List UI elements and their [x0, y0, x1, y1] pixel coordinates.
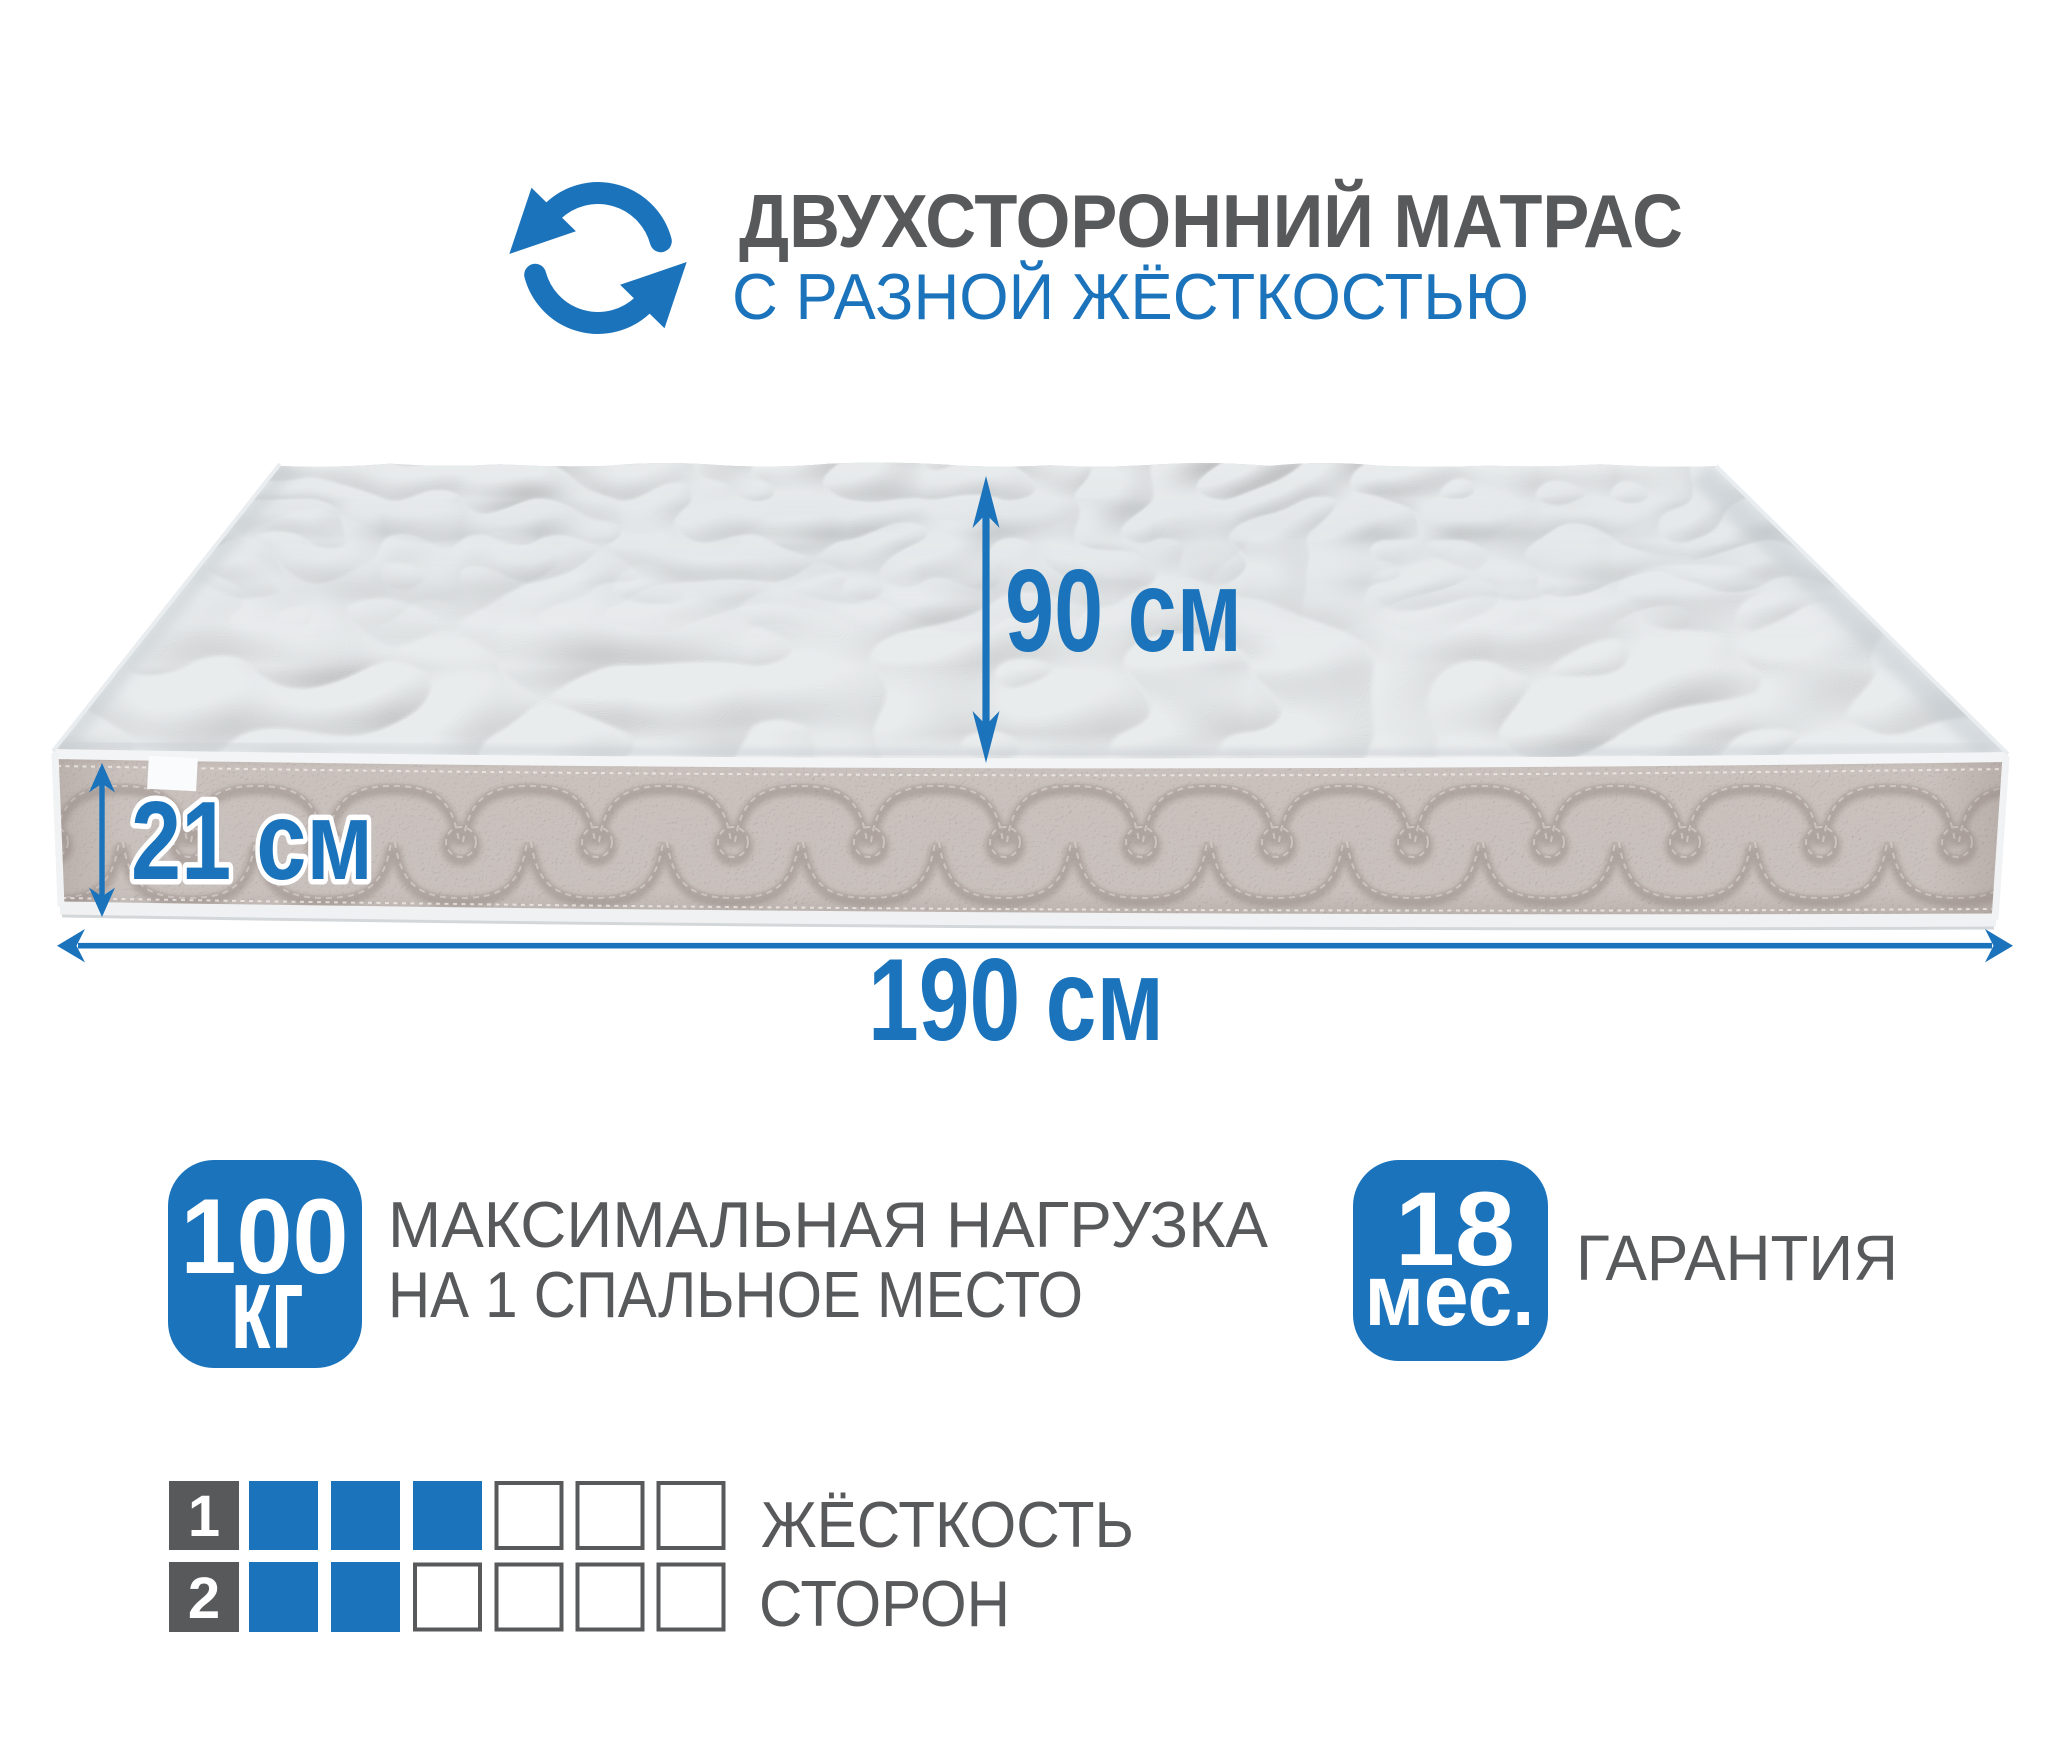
- svg-text:МАКСИМАЛЬНАЯ НАГРУЗКА: МАКСИМАЛЬНАЯ НАГРУЗКА: [388, 1188, 1269, 1261]
- svg-text:1: 1: [188, 1484, 220, 1549]
- svg-text:90 см: 90 см: [1005, 545, 1242, 676]
- svg-text:ДВУХСТОРОННИЙ МАТРАС: ДВУХСТОРОННИЙ МАТРАС: [739, 179, 1683, 263]
- svg-text:21 см: 21 см: [131, 779, 373, 903]
- svg-text:кг: кг: [230, 1241, 304, 1374]
- svg-text:190 см: 190 см: [868, 934, 1164, 1065]
- svg-text:ЖЁСТКОСТЬ: ЖЁСТКОСТЬ: [761, 1488, 1134, 1561]
- svg-text:СТОРОН: СТОРОН: [759, 1567, 1010, 1640]
- svg-text:С РАЗНОЙ ЖЁСТКОСТЬЮ: С РАЗНОЙ ЖЁСТКОСТЬЮ: [732, 260, 1529, 333]
- svg-text:ГАРАНТИЯ: ГАРАНТИЯ: [1576, 1222, 1898, 1294]
- svg-text:мес.: мес.: [1365, 1247, 1535, 1344]
- svg-text:НА 1 СПАЛЬНОЕ МЕСТО: НА 1 СПАЛЬНОЕ МЕСТО: [388, 1258, 1083, 1331]
- svg-text:2: 2: [188, 1566, 220, 1631]
